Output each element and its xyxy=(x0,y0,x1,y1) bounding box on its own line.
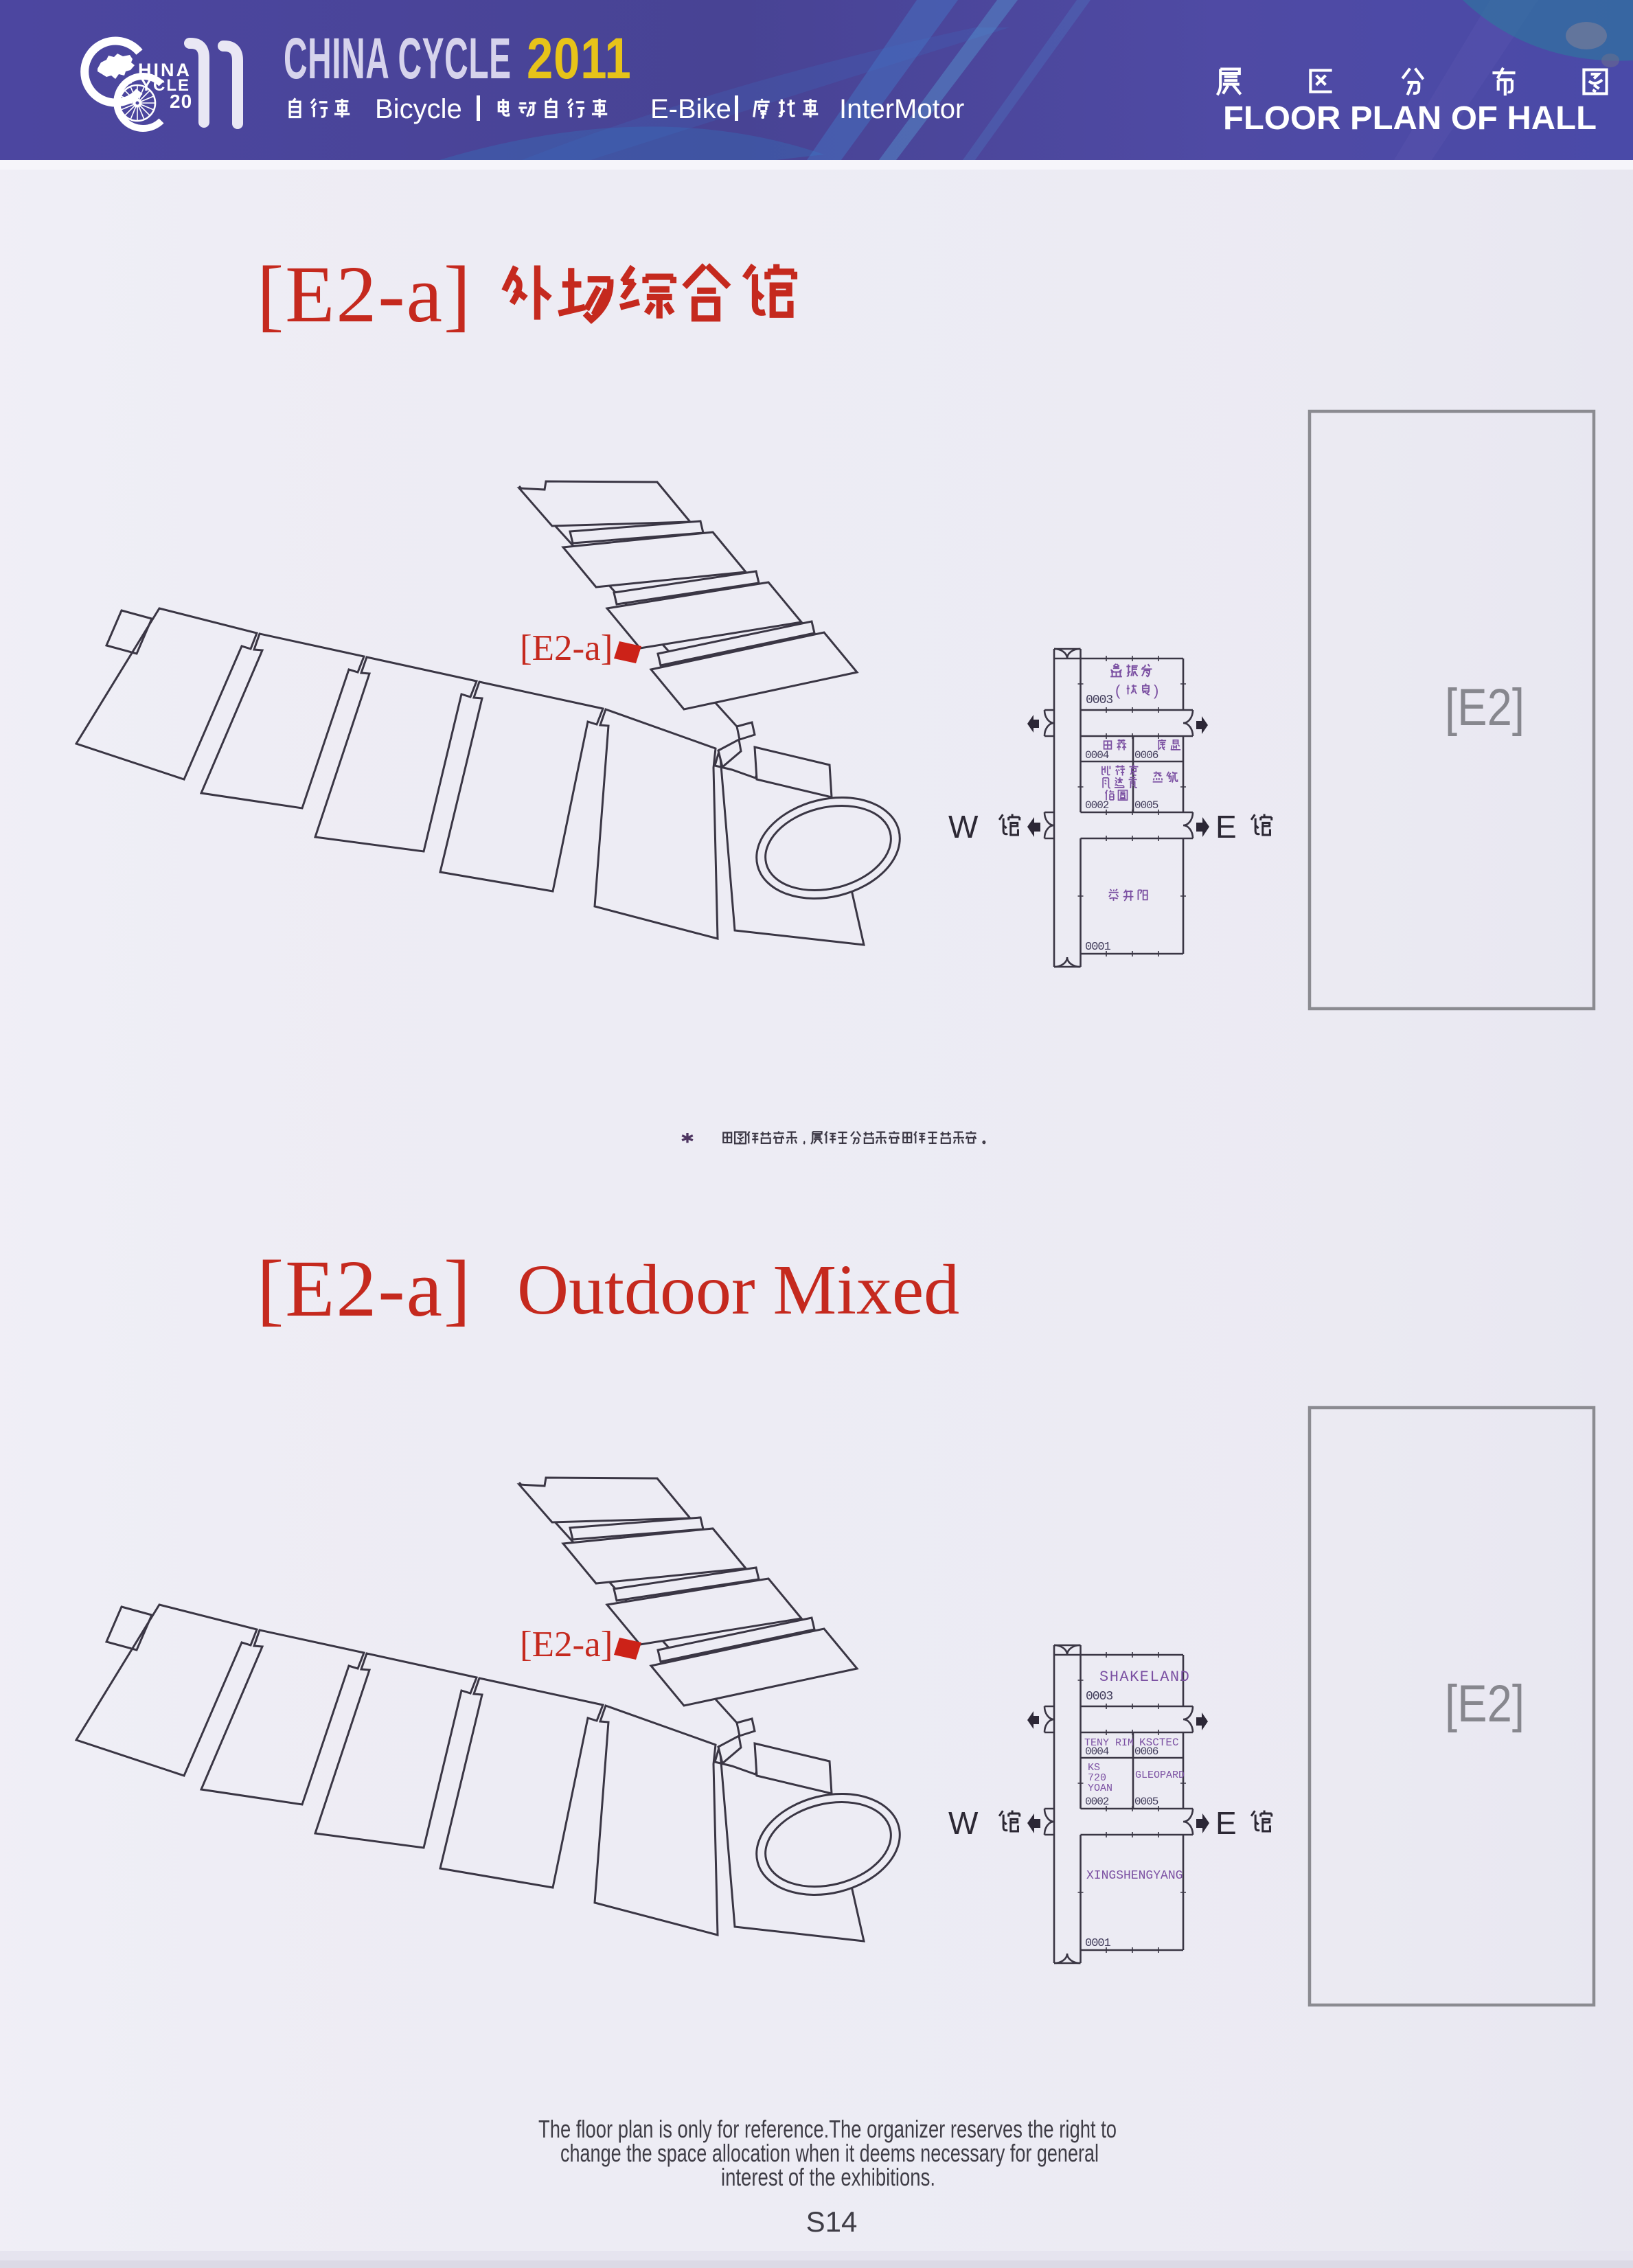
svg-text:[E2-a]: [E2-a] xyxy=(257,249,472,339)
svg-text:CHINA CYCLE: CHINA CYCLE xyxy=(284,27,512,91)
svg-text:0001: 0001 xyxy=(1085,1937,1111,1950)
svg-text:[E2]: [E2] xyxy=(1445,678,1524,737)
svg-text:): ) xyxy=(1154,682,1158,699)
svg-text:E: E xyxy=(1215,809,1237,845)
svg-text:S14: S14 xyxy=(806,2206,858,2238)
svg-text:[E2-a]: [E2-a] xyxy=(257,1244,472,1333)
svg-text:E-Bike: E-Bike xyxy=(650,94,731,124)
svg-text:YOAN: YOAN xyxy=(1088,1783,1112,1794)
svg-text:interest of the exhibitions.: interest of the exhibitions. xyxy=(721,2163,935,2191)
svg-text:[E2-a]: [E2-a] xyxy=(520,1625,613,1664)
svg-text:Bicycle: Bicycle xyxy=(375,94,462,124)
svg-text:W: W xyxy=(948,809,979,845)
svg-text:0005: 0005 xyxy=(1134,799,1158,812)
svg-text:0006: 0006 xyxy=(1134,749,1158,761)
svg-text:0004: 0004 xyxy=(1085,749,1109,761)
svg-text:2011: 2011 xyxy=(527,27,632,91)
svg-text:0003: 0003 xyxy=(1086,1690,1112,1704)
svg-text:0005: 0005 xyxy=(1134,1796,1158,1808)
svg-text:[E2-a]: [E2-a] xyxy=(520,628,613,668)
svg-text:SHAKELAND: SHAKELAND xyxy=(1099,1669,1190,1686)
svg-text:XINGSHENGYANG: XINGSHENGYANG xyxy=(1086,1869,1183,1883)
svg-text:0004: 0004 xyxy=(1085,1745,1109,1758)
svg-text:20: 20 xyxy=(170,91,192,112)
svg-text:Outdoor Mixed: Outdoor Mixed xyxy=(517,1250,959,1329)
svg-text:0003: 0003 xyxy=(1086,694,1112,707)
svg-text:0006: 0006 xyxy=(1134,1745,1158,1758)
svg-text:[E2]: [E2] xyxy=(1445,1675,1524,1733)
svg-text:0001: 0001 xyxy=(1085,941,1111,954)
svg-text:InterMotor: InterMotor xyxy=(839,94,964,124)
svg-text:GLEOPARD: GLEOPARD xyxy=(1135,1769,1185,1781)
svg-text:(: ( xyxy=(1115,682,1121,699)
svg-text:E: E xyxy=(1215,1805,1237,1841)
svg-text:0002: 0002 xyxy=(1085,799,1109,812)
svg-text:0002: 0002 xyxy=(1085,1796,1109,1808)
svg-text:W: W xyxy=(948,1805,979,1841)
svg-text:FLOOR PLAN OF HALL: FLOOR PLAN OF HALL xyxy=(1223,100,1597,137)
